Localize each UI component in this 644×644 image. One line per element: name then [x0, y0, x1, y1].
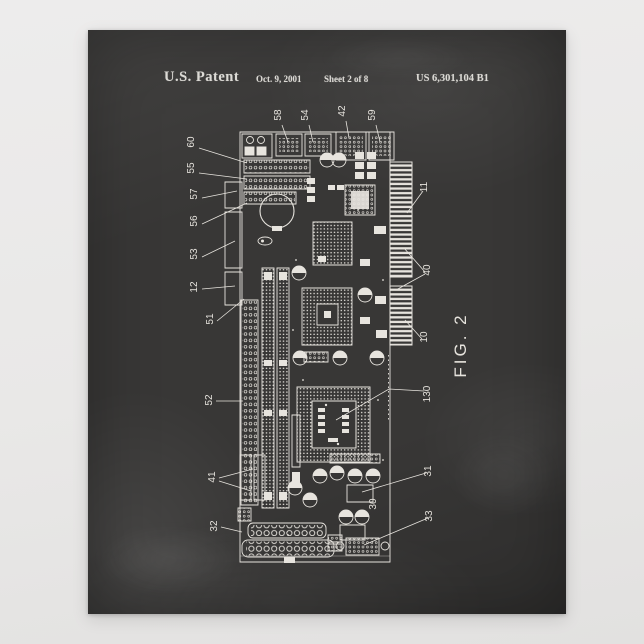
- edge-connector-fingers: [389, 162, 413, 422]
- long-edge-connector: [241, 300, 258, 505]
- dimm-slots: [262, 268, 289, 508]
- qfp-chip: [345, 185, 375, 215]
- ref-label-130: 130: [422, 385, 433, 402]
- poster-photo: { "scene": { "background_color": "#e9e8e…: [0, 0, 644, 644]
- ref-label-56: 56: [189, 215, 200, 227]
- ref-label-12: 12: [189, 281, 200, 293]
- ref-label-51: 51: [205, 313, 216, 325]
- circuit-board-figure: 58 54 42 59 60 55 57 56 53 12 51 52 41 3…: [88, 30, 566, 614]
- ref-label-57: 57: [189, 188, 200, 200]
- ref-label-59: 59: [367, 109, 378, 121]
- cpu-socket: [297, 387, 370, 462]
- ref-label-41: 41: [207, 471, 218, 483]
- ref-label-54: 54: [300, 109, 311, 121]
- ref-label-11: 11: [419, 181, 430, 192]
- ref-label-53: 53: [189, 248, 200, 260]
- bottom-db-connector: [242, 523, 334, 563]
- bga-chip: [313, 222, 352, 265]
- chalkboard-patent-poster: U.S. Patent Oct. 9, 2001 Sheet 2 of 8 US…: [88, 30, 566, 614]
- pga-socket: [302, 288, 352, 345]
- ref-label-31: 31: [423, 465, 434, 477]
- ref-label-33: 33: [424, 510, 435, 522]
- socketed-chip: [336, 538, 389, 555]
- ref-label-30: 30: [368, 498, 379, 510]
- ref-label-52: 52: [204, 394, 215, 406]
- ref-label-58: 58: [273, 109, 284, 121]
- ref-label-40: 40: [422, 264, 433, 276]
- bottom-chips: [238, 454, 380, 551]
- jumper-oval: [258, 237, 272, 245]
- ref-label-60: 60: [186, 136, 197, 148]
- figure-caption: FIG. 2: [451, 312, 470, 377]
- header-pin-rows: [244, 160, 310, 204]
- ref-label-42: 42: [337, 105, 348, 117]
- ref-label-55: 55: [186, 162, 197, 174]
- ref-label-10: 10: [419, 331, 430, 343]
- ref-label-32: 32: [209, 520, 220, 532]
